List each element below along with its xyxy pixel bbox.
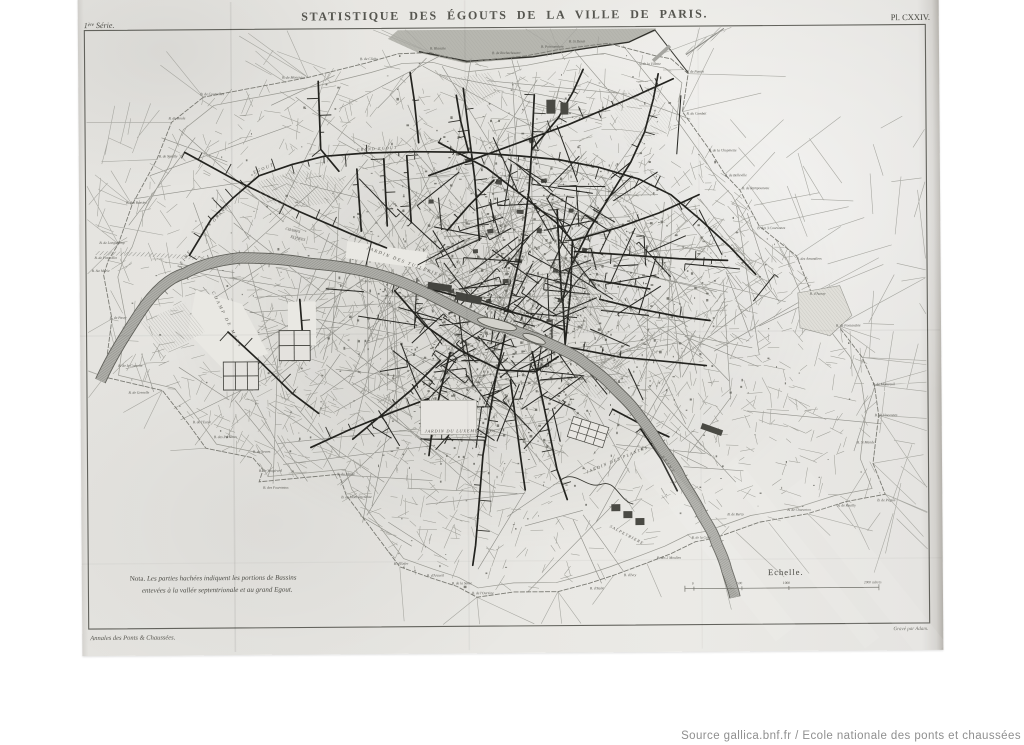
svg-text:B. de Picpus: B. de Picpus <box>877 498 896 502</box>
svg-text:entevées à la vallée septentri: entevées à la vallée septentrionale et a… <box>142 586 293 595</box>
svg-text:B. de la Chopinette: B. de la Chopinette <box>709 148 737 152</box>
svg-text:B. d'Aunay: B. d'Aunay <box>810 292 826 296</box>
svg-text:R. St Mande: R. St Mande <box>856 440 875 444</box>
svg-text:B. d'Arcueil: B. d'Arcueil <box>427 573 444 577</box>
svg-text:B. de Vaugirard: B. de Vaugirard <box>259 469 282 473</box>
svg-text:B. du Maine: B. du Maine <box>337 472 355 476</box>
svg-text:B. de Clichy: B. de Clichy <box>360 57 378 61</box>
svg-text:B. des Bassins: B. des Bassins <box>126 201 147 205</box>
svg-text:B. Poissonniere: B. Poissonniere <box>541 45 564 49</box>
svg-text:B. du Mont Parnasse: B. du Mont Parnasse <box>341 495 372 499</box>
svg-text:B. des Amandiers: B. des Amandiers <box>797 257 823 261</box>
svg-text:1000: 1000 <box>783 581 790 585</box>
svg-text:1ère Série.: 1ère Série. <box>84 21 115 30</box>
svg-text:JARDIN DU LUXEMBOURG: JARDIN DU LUXEMBOURG <box>425 428 494 434</box>
svg-text:B. de Montreuil: B. de Montreuil <box>872 382 895 386</box>
svg-text:B. Ste Marie: B. Ste Marie <box>92 269 110 273</box>
svg-text:STATISTIQUE DES ÉGOUTS DE LA V: STATISTIQUE DES ÉGOUTS DE LA VILLE DE PA… <box>301 7 708 24</box>
svg-text:B. d'Ivry: B. d'Ivry <box>624 573 637 577</box>
svg-text:Annales des Ponts & Chaussées.: Annales des Ponts & Chaussées. <box>89 634 175 642</box>
svg-text:B. Blanche: B. Blanche <box>430 46 446 50</box>
svg-text:Echelle.: Echelle. <box>768 567 804 577</box>
svg-text:B. d'Italie: B. d'Italie <box>590 586 605 590</box>
svg-text:Pl. CXXIV.: Pl. CXXIV. <box>891 12 930 22</box>
svg-text:B. de Vincennes: B. de Vincennes <box>875 413 898 417</box>
svg-text:B. de Fontarabie: B. de Fontarabie <box>836 323 861 327</box>
svg-text:R. St Denis: R. St Denis <box>568 39 586 43</box>
svg-text:B. de Neuilly: B. de Neuilly <box>159 154 178 158</box>
svg-text:B. de l'Oursine: B. de l'Oursine <box>472 591 494 595</box>
svg-text:B. de Grenelle: B. de Grenelle <box>128 391 149 395</box>
svg-text:Nota. Les parties hachées indi: Nota. Les parties hachées indiquent les … <box>130 574 297 583</box>
svg-text:B. de la Guerche: B. de la Guerche <box>118 364 143 368</box>
svg-text:B. de Pantin: B. de Pantin <box>686 70 704 74</box>
svg-text:B. de Monceaux: B. de Monceaux <box>282 75 306 79</box>
svg-text:B. de Rochechouart: B. de Rochechouart <box>492 51 521 55</box>
svg-text:S. de la Villette: S. de la Villette <box>639 62 661 66</box>
svg-text:B. des Fourneaux: B. des Fourneaux <box>263 486 289 490</box>
svg-text:B. de Francklin: B. de Francklin <box>94 256 117 260</box>
svg-text:B. du Combat: B. du Combat <box>686 112 707 116</box>
svg-text:B. de Bercy: B. de Bercy <box>727 512 744 516</box>
svg-text:B. de l'Ecole: B. de l'Ecole <box>193 420 212 424</box>
svg-text:B. de Rampouneau: B. de Rampouneau <box>742 186 769 190</box>
svg-text:B. de Courcelles: B. de Courcelles <box>200 92 224 96</box>
svg-text:B. de Longchamp: B. de Longchamp <box>99 241 124 245</box>
svg-text:B. de Reuilly: B. de Reuilly <box>837 503 856 507</box>
svg-text:0: 0 <box>692 582 694 586</box>
svg-text:B. des 3 Couronnes: B. des 3 Couronnes <box>757 226 786 230</box>
svg-text:B. du Roule: B. du Roule <box>168 116 185 120</box>
svg-text:B. de Passy: B. de Passy <box>110 316 127 320</box>
svg-text:B. de Sevres: B. de Sevres <box>253 450 271 454</box>
svg-text:B. de Belleville: B. de Belleville <box>725 173 747 177</box>
